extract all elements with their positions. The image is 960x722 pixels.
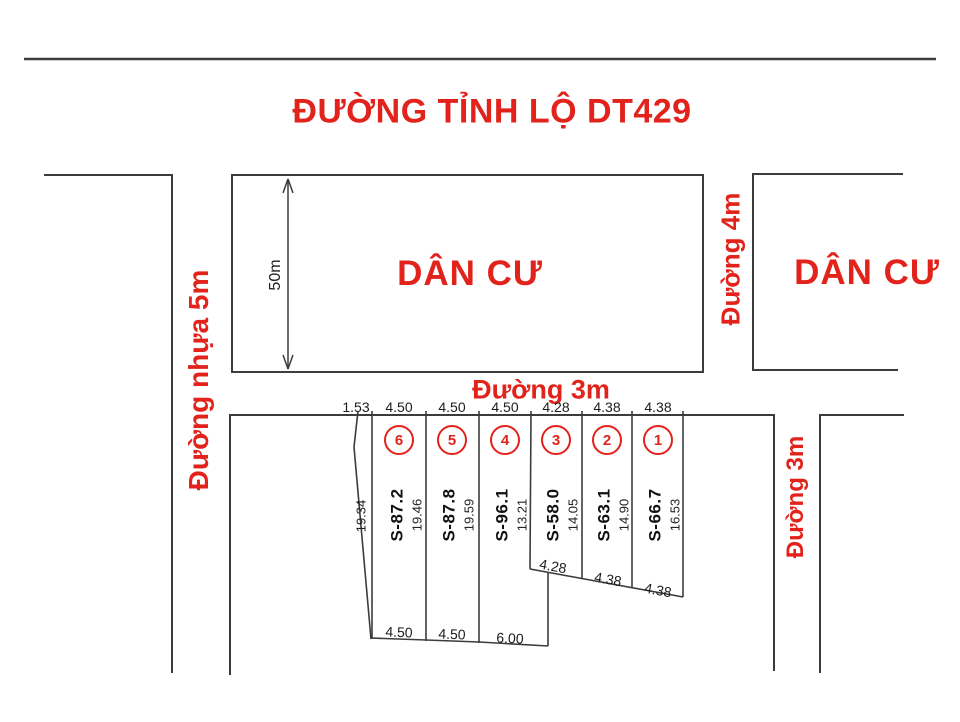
- plot-area-value: S-87.2: [388, 488, 408, 541]
- land-plot-site-plan: ĐƯỜNG TỈNH LỘ DT429 Đường nhựa 5m Đường …: [0, 0, 960, 722]
- plot-number-badge: 2: [592, 425, 622, 455]
- rear-dim: 4.50: [438, 626, 466, 643]
- road-label-left: Đường nhựa 5m: [183, 270, 215, 491]
- plot-side-length: 19.59: [462, 499, 477, 532]
- plot-number: 2: [603, 432, 611, 449]
- plot-number-badge: 1: [643, 425, 673, 455]
- plot-number: 1: [654, 432, 662, 449]
- plot-side-length: 16.53: [668, 499, 683, 532]
- plot-area-value: S-66.7: [646, 488, 666, 541]
- plot-area-label-group: S-63.1 14.90: [595, 488, 632, 541]
- plot-number: 5: [448, 432, 456, 449]
- frontage-dim: 1.53: [342, 399, 369, 415]
- plot-number-badge: 6: [384, 425, 414, 455]
- plot-side-length: 14.90: [617, 499, 632, 532]
- frontage-dim: 4.38: [644, 399, 671, 415]
- frontage-dim: 4.50: [438, 399, 465, 415]
- plot-area-label-group: S-87.8 19.59: [440, 488, 477, 541]
- plot-number-badge: 3: [541, 425, 571, 455]
- road-label-right-bottom: Đường 3m: [782, 436, 810, 558]
- residential-right-label: DÂN CƯ: [794, 253, 940, 293]
- plot-area-value: S-63.1: [595, 488, 615, 541]
- plot-side-length: 19.46: [410, 499, 425, 532]
- plot-area-label-group: S-96.1 13.21: [493, 488, 530, 541]
- plot-area-label-group: S-58.0 14.05: [544, 488, 581, 541]
- plot-area-label-group: S-87.2 19.46: [388, 488, 425, 541]
- rear-dim: 6.00: [496, 629, 524, 646]
- road-label-right-top: Đường 4m: [716, 193, 747, 326]
- rear-dim: 4.50: [385, 624, 413, 641]
- depth-dimension-label: 50m: [267, 259, 285, 290]
- frontage-dim: 4.28: [542, 399, 569, 415]
- plot-number: 4: [501, 432, 509, 449]
- frontage-dim: 4.50: [491, 399, 518, 415]
- plot-side-length: 14.05: [566, 499, 581, 532]
- lower-right-block-outline: [820, 415, 904, 673]
- plot-number: 6: [395, 432, 403, 449]
- plot-number-badge: 5: [437, 425, 467, 455]
- frontage-dim: 4.38: [593, 399, 620, 415]
- plot-area-value: S-58.0: [544, 488, 564, 541]
- plot-area-value: S-96.1: [493, 488, 513, 541]
- frontage-dim: 4.50: [385, 399, 412, 415]
- plot-area-label-group: S-66.7 16.53: [646, 488, 683, 541]
- residential-left-label: DÂN CƯ: [397, 254, 543, 294]
- plot-number: 3: [552, 432, 560, 449]
- plot-side-length: 13.21: [515, 499, 530, 532]
- plan-title: ĐƯỜNG TỈNH LỘ DT429: [292, 93, 691, 132]
- left-block-boundary: [44, 175, 172, 673]
- plot-number-badge: 4: [490, 425, 520, 455]
- plot-area-value: S-87.8: [440, 488, 460, 541]
- left-edge-dimension: 19.34: [354, 500, 369, 533]
